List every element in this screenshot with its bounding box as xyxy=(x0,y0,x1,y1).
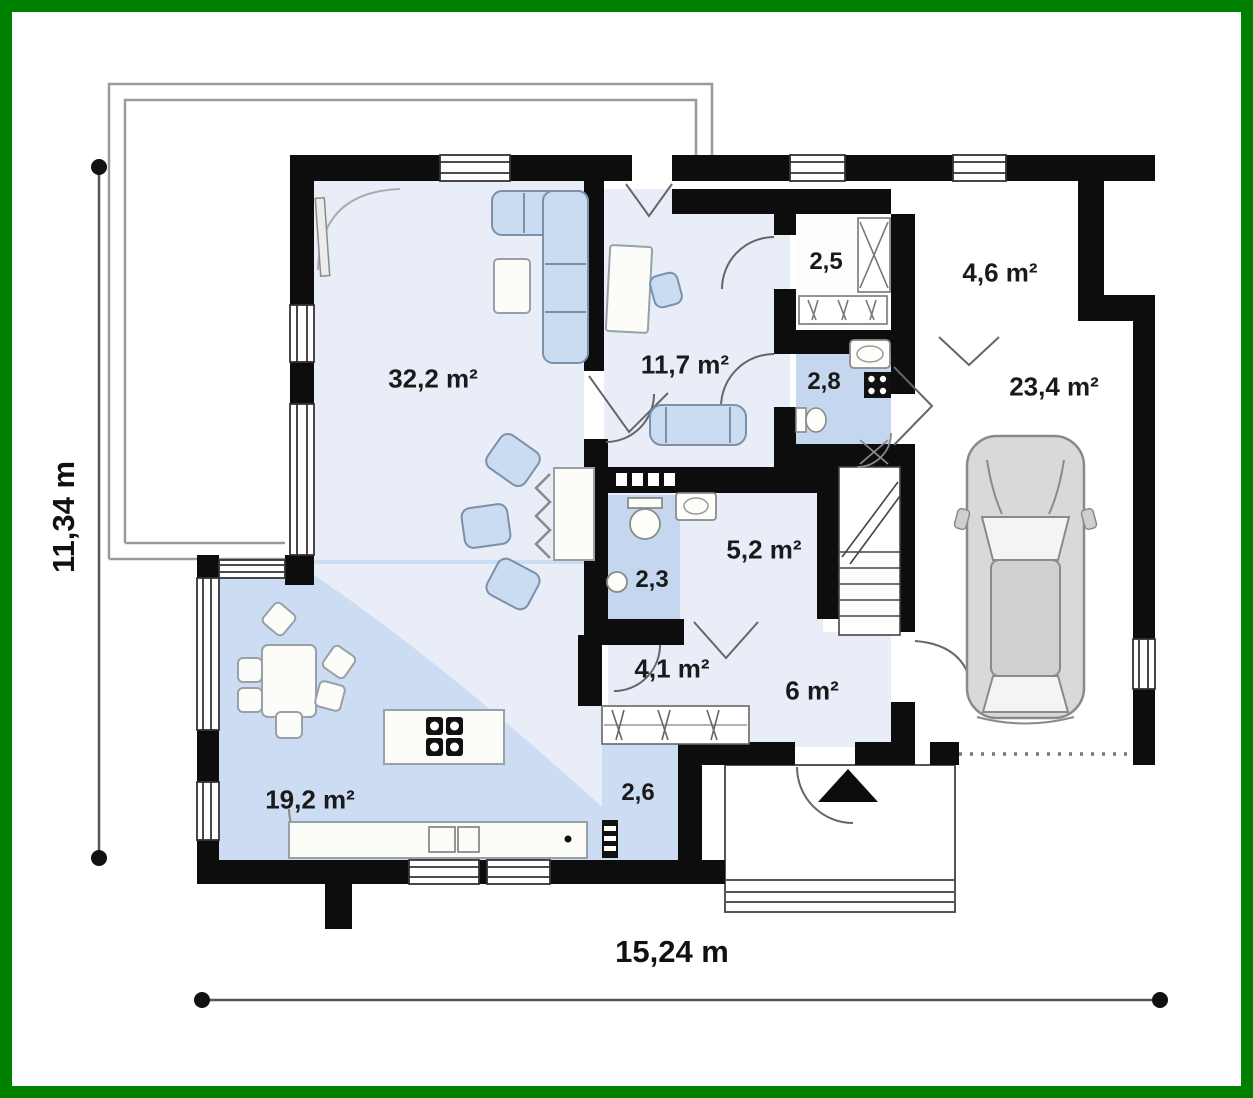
room-label-storage: 4,6 m² xyxy=(962,258,1037,289)
window-wardrobe-top xyxy=(790,155,845,181)
room-label-utility: 5,2 m² xyxy=(726,535,801,566)
corridor-closet xyxy=(602,706,749,744)
washer-icon xyxy=(864,372,891,398)
window-bay-top xyxy=(219,560,285,578)
car-roof xyxy=(991,560,1060,676)
dimension-line-bottom xyxy=(194,992,1168,1008)
room-label-bathroom: 2,8 xyxy=(807,368,840,396)
stairs xyxy=(839,467,900,635)
room-label-living: 32,2 m² xyxy=(388,364,478,395)
room-label-garage: 23,4 m² xyxy=(1009,372,1099,403)
car xyxy=(954,436,1098,724)
study-sofa xyxy=(650,405,746,445)
dimension-line-left xyxy=(91,159,107,866)
coffee-table xyxy=(494,259,530,313)
bath-sink xyxy=(850,340,890,368)
window-living-top xyxy=(440,155,510,181)
faucet-dot xyxy=(565,836,572,843)
dining-table xyxy=(262,645,316,717)
car-windshield xyxy=(982,517,1069,560)
window-bay-left-lower xyxy=(197,782,219,840)
dimension-width-label: 15,24 m xyxy=(615,934,729,970)
kitchen-island xyxy=(384,710,504,764)
window-living-left-upper xyxy=(290,305,314,362)
room-label-pantry: 2,6 xyxy=(621,779,654,807)
toilet-bowl xyxy=(806,408,826,432)
room-label-wc: 2,3 xyxy=(635,566,668,594)
desk xyxy=(606,245,652,333)
room-label-hall: 6 m² xyxy=(785,676,838,707)
window-living-left-lower xyxy=(290,404,314,555)
floor-plan-drawing xyxy=(12,12,1241,1086)
window-storage-top xyxy=(953,155,1006,181)
utility-sink xyxy=(676,493,716,520)
dimension-height-label: 11,34 m xyxy=(46,461,82,573)
floor-plan: 32,2 m² 11,7 m² 2,5 4,6 m² 2,8 23,4 m² 5… xyxy=(0,0,1253,1098)
toilet-tank xyxy=(796,408,806,432)
window-kitchen-bottom-a xyxy=(409,860,479,884)
room-label-kitchen: 19,2 m² xyxy=(265,785,355,816)
room-label-corridor: 4,1 m² xyxy=(634,654,709,685)
wc-toilet-bowl xyxy=(630,509,660,539)
fireplace-console xyxy=(554,468,594,560)
window-garage-right xyxy=(1133,639,1155,689)
pantry-shelf-icon xyxy=(602,820,618,858)
car-rear-window xyxy=(983,676,1068,712)
window-bay-left-upper xyxy=(197,578,219,730)
wc-toilet-tank xyxy=(628,498,662,508)
room-label-study: 11,7 m² xyxy=(641,350,729,381)
room-label-wardrobe: 2,5 xyxy=(809,248,842,276)
wc-sink xyxy=(607,572,627,592)
window-kitchen-bottom-b xyxy=(487,860,550,884)
